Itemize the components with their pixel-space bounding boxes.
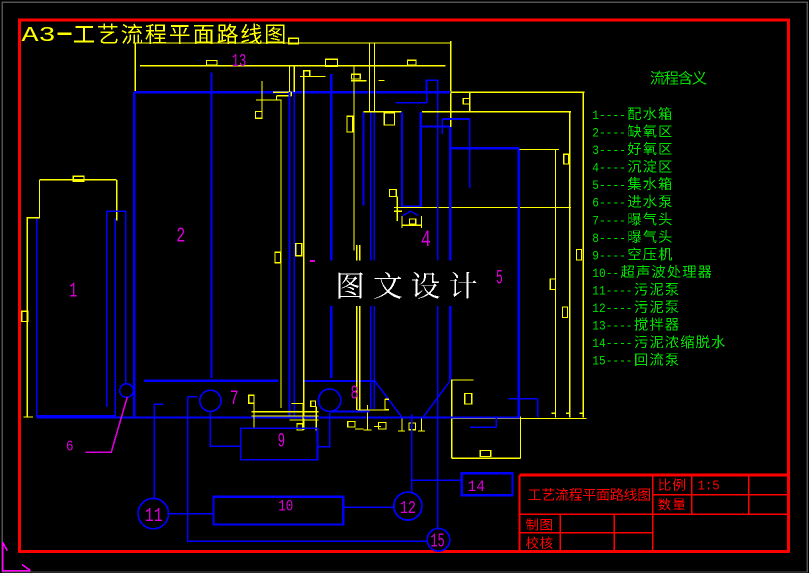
svg-text:8----: 8---- — [592, 231, 626, 246]
svg-text:2----: 2---- — [592, 125, 626, 140]
svg-text:9: 9 — [278, 431, 286, 454]
svg-text:11----: 11---- — [592, 284, 632, 299]
svg-text:5----: 5---- — [592, 178, 626, 193]
svg-text:15: 15 — [430, 530, 444, 552]
svg-text:13: 13 — [232, 51, 247, 72]
svg-text:1----: 1---- — [592, 108, 626, 123]
svg-text:1:5: 1:5 — [698, 480, 720, 495]
svg-text:2: 2 — [176, 225, 185, 249]
svg-text:4----: 4---- — [592, 161, 626, 176]
svg-text:12----: 12---- — [592, 301, 632, 316]
svg-text:7----: 7---- — [592, 213, 626, 228]
svg-text:A3: A3 — [22, 24, 56, 48]
svg-text:10--: 10-- — [592, 266, 619, 281]
svg-text:6: 6 — [66, 439, 74, 455]
svg-text:4: 4 — [421, 227, 431, 253]
svg-text:1: 1 — [69, 280, 77, 304]
svg-text:12: 12 — [400, 498, 416, 519]
svg-text:14----: 14---- — [592, 336, 632, 351]
svg-text:9----: 9---- — [592, 248, 626, 263]
svg-text:6----: 6---- — [592, 196, 626, 211]
svg-text:3----: 3---- — [592, 143, 626, 158]
svg-text:13----: 13---- — [592, 319, 632, 334]
svg-text:15----: 15---- — [592, 354, 632, 369]
svg-text:5: 5 — [496, 267, 503, 290]
svg-text:7: 7 — [230, 388, 239, 411]
svg-text:10: 10 — [278, 498, 293, 516]
svg-text:11: 11 — [145, 505, 163, 527]
svg-text:8: 8 — [351, 383, 359, 405]
svg-text:14: 14 — [468, 478, 486, 496]
